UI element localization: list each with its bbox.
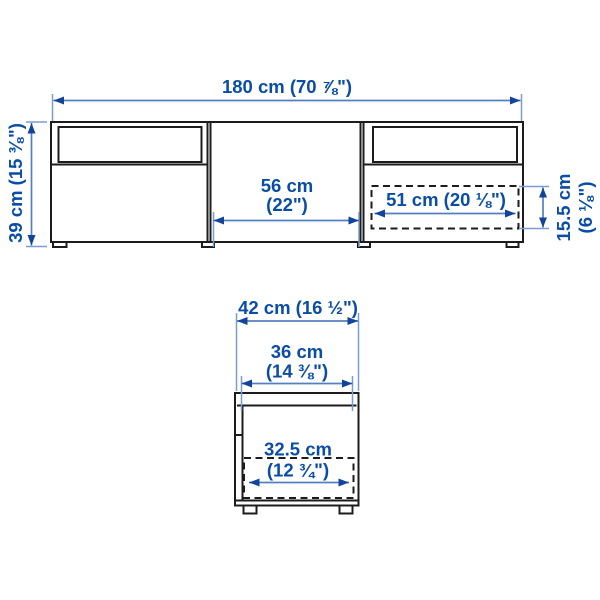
- arrow-left-icon: [214, 217, 225, 225]
- arrow-left-icon: [249, 479, 260, 487]
- front-foot-3: [358, 242, 370, 247]
- arrow-up-icon: [539, 188, 547, 198]
- dim-inner-depth-label-1: 36 cm: [271, 341, 323, 362]
- side-foot-1: [244, 506, 257, 514]
- dim-drawer-width: 51 cm (20 ⅛"): [375, 189, 516, 218]
- front-left-shelf-inset: [59, 127, 202, 162]
- arrow-up-icon: [28, 123, 36, 134]
- dim-height: 39 cm (15 ⅜"): [5, 122, 47, 247]
- dim-drawer-depth: 32.5 cm (12 ¾"): [249, 439, 349, 487]
- arrow-right-icon: [339, 479, 350, 487]
- dim-drawer-width-label: 51 cm (20 ⅛"): [386, 189, 506, 210]
- arrow-right-icon: [510, 97, 521, 105]
- front-foot-4: [507, 242, 519, 247]
- dim-total-width: 180 cm (70 ⅞"): [53, 76, 522, 121]
- dim-inner-depth: 36 cm (14 ⅜"): [242, 341, 353, 411]
- arrow-left-icon: [237, 317, 248, 325]
- arrow-right-icon: [348, 317, 359, 325]
- arrow-down-icon: [28, 235, 36, 246]
- dim-total-width-label: 180 cm (70 ⅞"): [222, 76, 352, 97]
- dim-middle-width-label-2: (22"): [266, 194, 308, 215]
- arrow-right-icon: [505, 210, 516, 218]
- arrow-right-icon: [349, 217, 360, 225]
- dim-drawer-depth-label-1: 32.5 cm: [264, 439, 332, 460]
- side-foot-2: [340, 506, 353, 514]
- dim-drawer-height-label-1: 15.5 cm: [553, 174, 574, 242]
- dim-drawer-depth-label-2: (12 ¾"): [267, 460, 329, 481]
- dimension-diagram: 180 cm (70 ⅞") 39 cm (15 ⅜") 56 cm (22")…: [0, 0, 600, 600]
- arrow-left-icon: [375, 210, 386, 218]
- dim-depth-label: 42 cm (16 ½"): [238, 297, 358, 318]
- dim-inner-depth-label-2: (14 ⅜"): [266, 361, 328, 382]
- dim-height-label: 39 cm (15 ⅜"): [5, 123, 26, 243]
- front-foot-2: [202, 242, 214, 247]
- arrow-right-icon: [342, 380, 353, 388]
- front-foot-1: [53, 242, 67, 247]
- arrow-down-icon: [539, 218, 547, 228]
- arrow-left-icon: [242, 380, 253, 388]
- dim-middle-width-label-1: 56 cm: [261, 175, 313, 196]
- dim-middle-width: 56 cm (22"): [214, 175, 360, 247]
- dimension-diagram-page: 180 cm (70 ⅞") 39 cm (15 ⅜") 56 cm (22")…: [0, 0, 600, 600]
- arrow-left-icon: [54, 97, 65, 105]
- front-right-shelf-inset: [373, 127, 517, 162]
- dim-drawer-height: 15.5 cm (6 ⅛"): [519, 174, 596, 242]
- dim-drawer-height-label-2: (6 ⅛"): [575, 182, 596, 234]
